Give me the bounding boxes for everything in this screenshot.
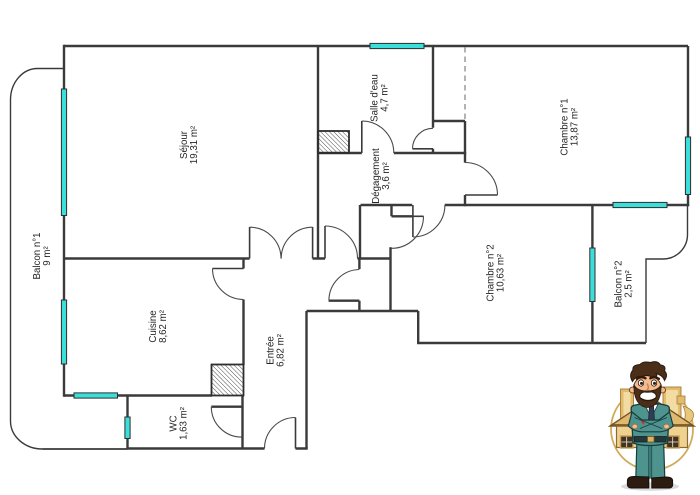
svg-text:4,7 m²: 4,7 m²: [380, 84, 391, 112]
svg-text:3,6 m²: 3,6 m²: [381, 162, 392, 190]
svg-text:1,63 m²: 1,63 m²: [179, 406, 190, 440]
svg-text:19,31 m²: 19,31 m²: [189, 125, 200, 164]
svg-text:13,87 m²: 13,87 m²: [570, 107, 581, 146]
svg-text:8,62 m²: 8,62 m²: [158, 309, 169, 343]
svg-text:6,82 m²: 6,82 m²: [276, 333, 287, 367]
svg-text:2,5 m²: 2,5 m²: [624, 270, 635, 298]
svg-text:9 m²: 9 m²: [42, 246, 53, 266]
svg-text:10,63 m²: 10,63 m²: [496, 253, 507, 292]
